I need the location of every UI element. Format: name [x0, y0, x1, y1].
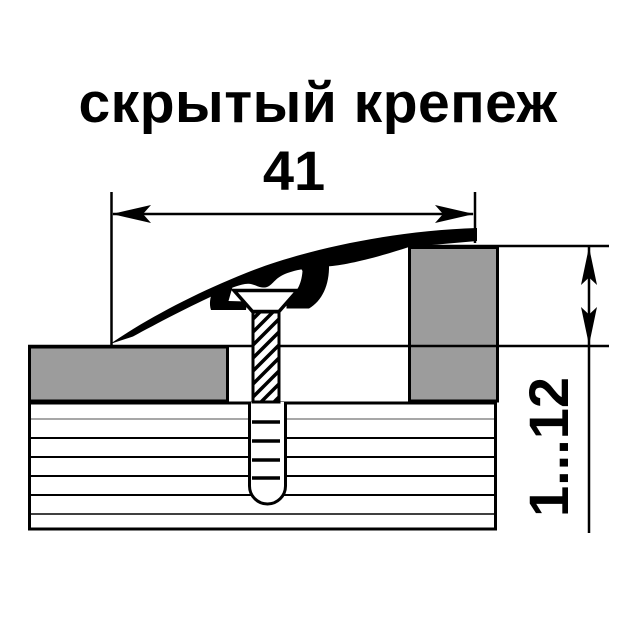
transition-profile-diagram: скрытый крепеж 41 [0, 0, 638, 639]
right-floor-covering [410, 248, 498, 402]
height-range-dimension-label: 1...12 [517, 377, 580, 517]
technical-drawing-page: скрытый крепеж 41 [0, 0, 638, 639]
drawing-title: скрытый крепеж [78, 71, 557, 135]
left-floor-covering [30, 347, 228, 401]
screw-pilot-hole [250, 402, 286, 504]
height-dimension: 1...12 [517, 247, 597, 533]
width-dimension-label: 41 [263, 139, 325, 202]
